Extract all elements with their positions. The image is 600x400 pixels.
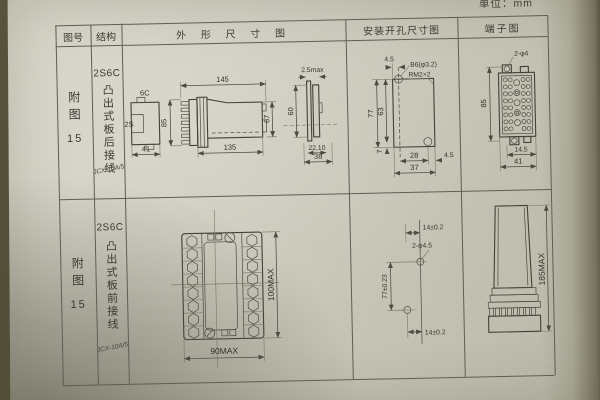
row2-wiring: 凸出式板前接线 (103, 240, 119, 331)
hole-layout (397, 220, 428, 345)
table-line (55, 25, 64, 385)
dim-body-width: 135 (224, 143, 237, 152)
row1-model: 2S6C (91, 68, 122, 80)
note-hole: 2-φ4.5 (412, 242, 432, 249)
row1-fig-number: 15 (58, 133, 93, 146)
dim-top-offset: 14±0.2 (423, 224, 444, 231)
dim-body-height: 67 (262, 115, 271, 124)
dim-height: 85 (479, 99, 488, 108)
bracket-section (131, 97, 160, 150)
dim-overall-width: 37 (410, 163, 419, 172)
note-thread: RM2×2 (408, 71, 430, 78)
dim-bracket-side: 2S (124, 120, 133, 129)
terminal-pins (503, 77, 531, 131)
note-hole: B6(φ3.2) (410, 61, 437, 69)
dim-overall-height: 85 (159, 119, 168, 128)
dim-bracket-code: 6C (140, 88, 150, 97)
dim-pitch: 14.5 (514, 146, 528, 153)
row1-fig-no-cell: 附图 15 (57, 91, 93, 146)
manual-page: 单位：mm 图号 结构 外 形 尺 寸 图 安装开孔尺寸图 端子图 (8, 0, 600, 400)
dim-bracket-width: 41 (142, 144, 151, 153)
row1-wiring: 凸出式板后接线 (100, 84, 116, 175)
row2-fig-number: 15 (61, 299, 96, 312)
dim-width: 90MAX (210, 346, 238, 357)
row2-relay-type: JCX-10A/5 (96, 341, 130, 354)
row2-fig-label: 附图 (69, 257, 87, 291)
dim-flange-width: 145 (216, 75, 229, 84)
dim-panel-thickness: 2.5max (301, 67, 324, 74)
header-structure: 结构 (90, 28, 121, 44)
row2-model: 2S6C (94, 222, 125, 234)
dim-width: 41 (514, 157, 523, 166)
dim-cutout-height: 60 (286, 107, 295, 116)
row1-fig-label: 附图 (66, 91, 84, 125)
dim-side-offset: 4.5 (444, 152, 454, 159)
dim-bottom-offset: 7 (375, 149, 384, 153)
photo-of-manual-page: 单位：mm 图号 结构 外 形 尺 寸 图 安装开孔尺寸图 端子图 (0, 0, 600, 400)
dim-hole-pitch-v: 77±0.23 (382, 274, 390, 299)
r2-outline-drawing: 90MAX 100MAX (125, 193, 353, 384)
relay-on-socket-profile (486, 205, 541, 332)
dim-edge-offset: 4.5 (384, 56, 394, 63)
row2-fig-no-cell: 附图 15 (60, 257, 96, 312)
terminal-block (498, 64, 536, 145)
dim-edge-width: 38 (314, 152, 323, 161)
r1-outline-drawing: 6C 2S 41 (122, 40, 349, 198)
r2-mounting-drawing: 14±0.2 2-φ4.5 77±0.23 14±0.2 (349, 191, 465, 379)
dim-overall-height: 77 (366, 109, 375, 118)
drawing-table: 图号 结构 外 形 尺 寸 图 安装开孔尺寸图 端子图 附图 15 2S6C 凸… (55, 15, 554, 385)
relay-side-view (181, 96, 267, 148)
r1-terminal-drawing: 2-φ4 85 14.5 41 (458, 36, 551, 191)
unit-label: 单位：mm (479, 0, 533, 11)
row2-wiring-cell: 凸出式板前接线 (95, 240, 128, 337)
header-fig-no: 图号 (55, 29, 90, 45)
dim-height: 100MAX (265, 268, 276, 301)
screw-terminals (187, 234, 259, 338)
dim-bottom-offset: 14±0.2 (425, 329, 446, 336)
dim-hole-pitch-h: 28 (410, 151, 419, 160)
drawing-sheet: 单位：mm 图号 结构 外 形 尺 寸 图 安装开孔尺寸图 端子图 (55, 0, 569, 397)
r1-mounting-drawing: B6(φ3.2) RM2×2 4.5 77 63 7 28 (346, 38, 461, 193)
r2-terminal-drawing: 185MAX (461, 189, 555, 377)
header-terminal: 端子图 (457, 19, 547, 36)
dim-height: 185MAX (536, 252, 547, 285)
header-mounting: 安装开孔尺寸图 (345, 21, 457, 38)
dim-hole-pitch-v: 63 (376, 107, 385, 116)
panel-cutout (392, 66, 435, 157)
note-hole: 2-φ4 (514, 50, 529, 57)
